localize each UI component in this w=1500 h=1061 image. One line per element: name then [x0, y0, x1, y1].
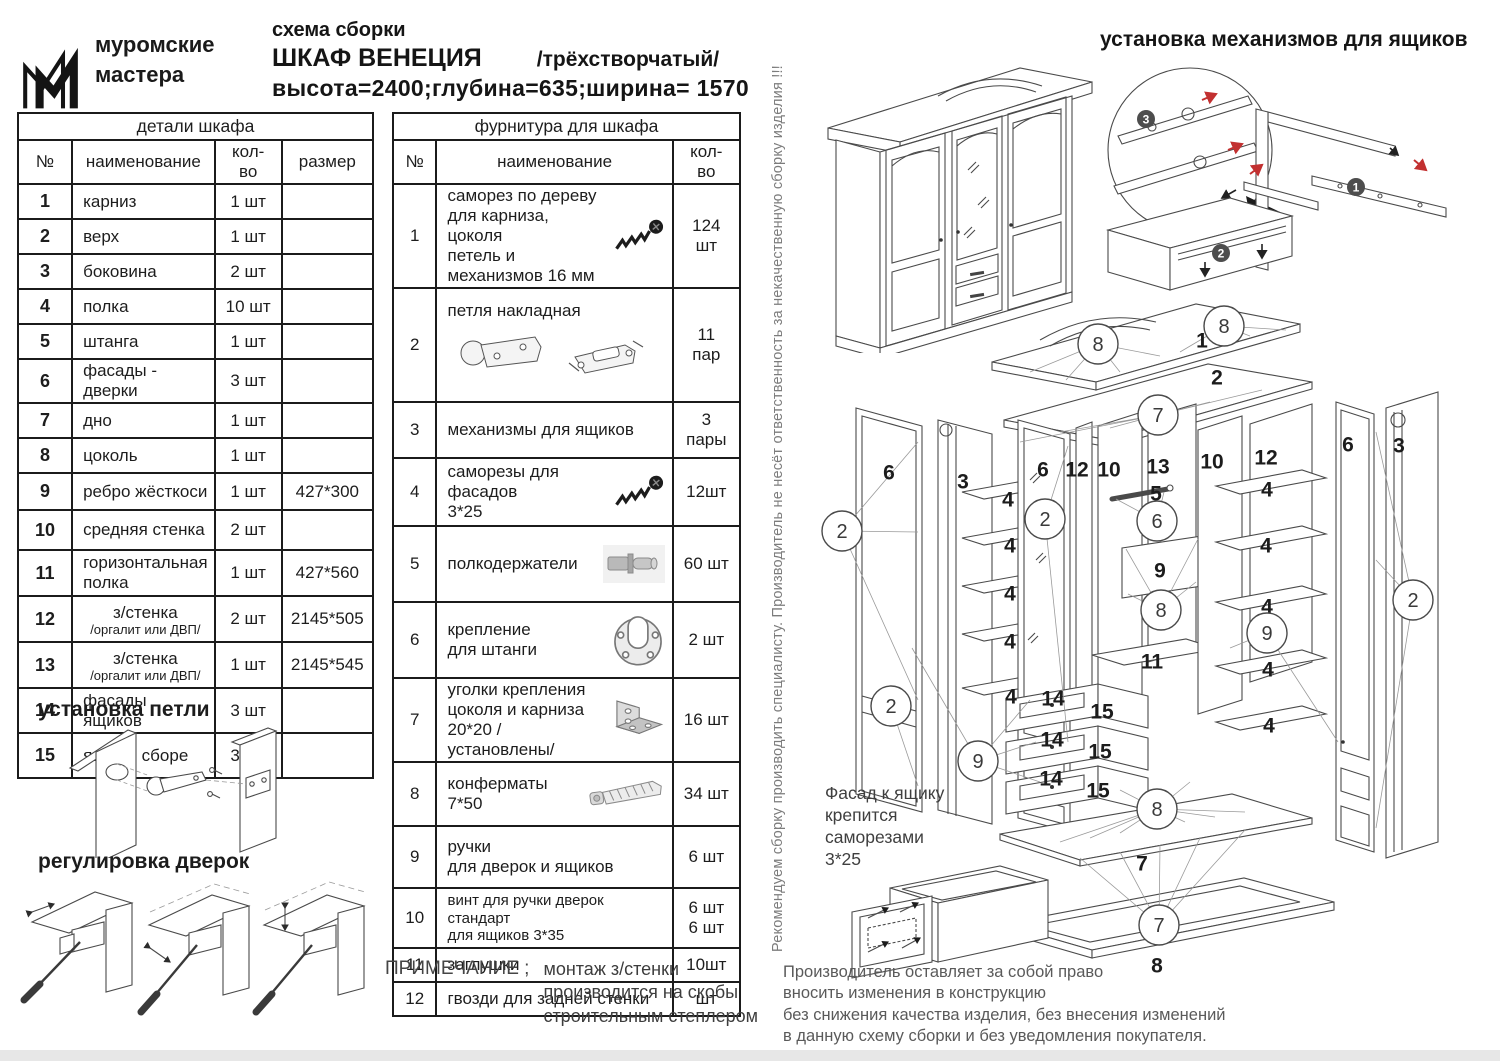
callout-number: 8 — [1155, 600, 1166, 622]
parts-table-row: 4 полка 10 шт — [18, 289, 373, 324]
shelf-pin-icon — [602, 544, 666, 584]
column-header: кол- во — [215, 140, 282, 184]
hardware-table: фурнитура для шкафа №наименованиекол- во… — [392, 112, 741, 1017]
part-name: з/стенка/оргалит или ДВП/ — [72, 642, 215, 688]
hardware-table-row: 3 механизмы для ящиков 3 пары — [393, 402, 740, 458]
door-adjust-scene-2 — [141, 884, 250, 1012]
part-label: 7 — [1136, 853, 1148, 876]
part-label: 4 — [1260, 535, 1272, 558]
part-label: 14 — [1041, 688, 1065, 711]
logo-monogram — [18, 40, 90, 112]
parts-table-wrap: детали шкафа №наименованиекол- воразмер … — [17, 112, 374, 779]
part-qty: 1 шт — [215, 403, 282, 438]
callout-number: 6 — [1151, 511, 1162, 533]
part-name: з/стенка/оргалит или ДВП/ — [72, 596, 215, 642]
part-label: 15 — [1090, 701, 1114, 724]
part-label: 10 — [1097, 459, 1120, 482]
door-adjust-scene-3 — [256, 882, 365, 1012]
hardware-table-row: 5 полкодержатели 60 шт — [393, 526, 740, 602]
part-size — [282, 289, 373, 324]
part-name: дно — [72, 403, 215, 438]
callout-number: 9 — [972, 751, 983, 773]
part-qty: 2 шт — [215, 596, 282, 642]
part-number: 4 — [18, 289, 72, 324]
part-label: 13 — [1146, 456, 1169, 479]
callout-number: 7 — [1153, 915, 1164, 937]
hardware-qty: 16 шт — [673, 678, 740, 762]
mech-rail — [1312, 148, 1446, 217]
part-qty: 2 шт — [215, 254, 282, 289]
scheme-title: ШКАФ ВЕНЕЦИЯ — [272, 43, 482, 74]
part-qty: 1 шт — [215, 219, 282, 254]
logo-line2: мастера — [95, 60, 215, 90]
hardware-table-title: фурнитура для шкафа — [393, 113, 740, 140]
hardware-table-row: 7 уголки крепления цоколя и карниза 20*2… — [393, 678, 740, 762]
manufacturer-note: Производитель оставляет за собой право в… — [783, 962, 1226, 1048]
scheme-dimensions: высота=2400;глубина=635;ширина= 1570 — [272, 74, 749, 103]
wood-screw-icon — [612, 213, 666, 259]
callout-number: 8 — [1151, 799, 1162, 821]
hardware-qty: 6 шт — [673, 826, 740, 888]
hardware-table-row: 10 винт для ручки дверок стандарт для ящ… — [393, 888, 740, 948]
part-qty: 1 шт — [215, 473, 282, 510]
hinge-install-left-panel — [70, 730, 150, 858]
hardware-number: 10 — [393, 888, 436, 948]
confirmat-icon — [588, 779, 666, 809]
hardware-name-cell: полкодержатели — [436, 526, 672, 602]
part-name: цоколь — [72, 438, 215, 473]
drawer-mech-title: установка механизмов для ящиков — [1100, 28, 1468, 52]
part-qty: 1 шт — [215, 438, 282, 473]
note-block: ПРИМЕЧАНИЕ ; монтаж з/стенки производитс… — [385, 958, 758, 1028]
hinge-icon — [457, 323, 657, 385]
hardware-name: крепление для штанги — [447, 620, 537, 660]
hardware-table-wrap: фурнитура для шкафа №наименованиекол- во… — [392, 112, 741, 1017]
hardware-qty: 2 шт — [673, 602, 740, 678]
wood-screw-icon — [612, 469, 666, 515]
hardware-name-cell: крепление для штанги — [436, 602, 672, 678]
column-header: наименование — [72, 140, 215, 184]
part-name: карниз — [72, 184, 215, 219]
parts-table-row: 3 боковина 2 шт — [18, 254, 373, 289]
right-door-part — [1336, 402, 1374, 852]
part-label: 3 — [957, 471, 969, 494]
hardware-name-cell: саморез по дереву для карниза, цоколя пе… — [436, 184, 672, 288]
parts-table-title: детали шкафа — [18, 113, 373, 140]
hardware-number: 2 — [393, 288, 436, 402]
parts-table-row: 13 з/стенка/оргалит или ДВП/ 1 шт 2145*5… — [18, 642, 373, 688]
hardware-name-cell: конферматы 7*50 — [436, 762, 672, 826]
part-number: 6 — [18, 359, 72, 403]
hardware-table-header: №наименованиекол- во — [393, 140, 740, 184]
part-size — [282, 359, 373, 403]
part-size — [282, 403, 373, 438]
title-block: схема сборки ШКАФ ВЕНЕЦИЯ /трёхстворчаты… — [272, 18, 749, 103]
part-label: 4 — [1004, 631, 1016, 654]
hardware-number: 6 — [393, 602, 436, 678]
part-number: 5 — [18, 324, 72, 359]
part-label: 15 — [1088, 741, 1112, 764]
part-name: полка — [72, 289, 215, 324]
hardware-table-row: 6 крепление для штанги 2 шт — [393, 602, 740, 678]
part-number: 11 — [18, 550, 72, 596]
part-label: 4 — [1004, 583, 1016, 606]
hardware-name: конферматы 7*50 — [447, 774, 547, 814]
part-number: 9 — [18, 473, 72, 510]
right-side-panel-part — [1386, 392, 1438, 858]
hardware-number: 1 — [393, 184, 436, 288]
note-text: монтаж з/стенки производится на скобы ст… — [543, 958, 758, 1028]
door-adjust-diagram — [20, 872, 370, 1050]
hardware-number: 5 — [393, 526, 436, 602]
parts-table-row: 1 карниз 1 шт — [18, 184, 373, 219]
hinge-arm — [147, 768, 222, 798]
part-label: 4 — [1261, 479, 1273, 502]
hardware-qty: 60 шт — [673, 526, 740, 602]
part-number: 2 — [18, 219, 72, 254]
hardware-name: полкодержатели — [447, 554, 577, 574]
parts-table-row: 11 горизонтальная полка 1 шт 427*560 — [18, 550, 373, 596]
callout-number: 2 — [836, 521, 847, 543]
part-label: 4 — [1263, 715, 1275, 738]
callout-number: 7 — [1152, 405, 1163, 427]
part-size: 2145*505 — [282, 596, 373, 642]
logo-line1: муромские — [95, 30, 215, 60]
logo-text: муромские мастера — [95, 30, 215, 89]
part-label: 6 — [1342, 434, 1354, 457]
hardware-name: саморезы для фасадов 3*25 — [447, 462, 607, 522]
hardware-number: 8 — [393, 762, 436, 826]
hardware-qty: 6 шт 6 шт — [673, 888, 740, 948]
hardware-name-cell: механизмы для ящиков — [436, 402, 672, 458]
corner-bracket-icon — [608, 697, 666, 743]
part-size — [282, 324, 373, 359]
part-number: 1 — [18, 184, 72, 219]
part-name: средняя стенка — [72, 510, 215, 550]
rod-bracket-icon — [610, 612, 666, 668]
part-label: 10 — [1200, 451, 1223, 474]
hardware-qty: 34 шт — [673, 762, 740, 826]
column-header: наименование — [436, 140, 672, 184]
part-size: 427*560 — [282, 550, 373, 596]
hardware-table-row: 9 ручки для дверок и ящиков 6 шт — [393, 826, 740, 888]
hardware-name-cell: ручки для дверок и ящиков — [436, 826, 672, 888]
hardware-name: уголки крепления цоколя и карниза 20*20 … — [447, 680, 603, 760]
hinge-install-right-panel — [206, 728, 276, 852]
assembly-scheme-page: муромские мастера схема сборки ШКАФ ВЕНЕ… — [0, 0, 1500, 1061]
parts-table: детали шкафа №наименованиекол- воразмер … — [17, 112, 374, 779]
part-size: 2145*545 — [282, 642, 373, 688]
hardware-number: 4 — [393, 458, 436, 526]
hardware-name: ручки для дверок и ящиков — [447, 837, 613, 877]
part-number: 3 — [18, 254, 72, 289]
hardware-name-cell: уголки крепления цоколя и карниза 20*20 … — [436, 678, 672, 762]
parts-table-row: 5 штанга 1 шт — [18, 324, 373, 359]
part-qty: 1 шт — [215, 550, 282, 596]
parts-table-row: 10 средняя стенка 2 шт — [18, 510, 373, 550]
hardware-name: винт для ручки дверок стандарт для ящико… — [447, 892, 665, 945]
part-qty: 10 шт — [215, 289, 282, 324]
parts-table-row: 9 ребро жёсткоси 1 шт 427*300 — [18, 473, 373, 510]
column-header: размер — [282, 140, 373, 184]
vertical-disclaimer: Рекомендуем сборку производить специалис… — [770, 57, 786, 952]
part-label: 11 — [1141, 651, 1164, 674]
hardware-name-cell: саморезы для фасадов 3*25 — [436, 458, 672, 526]
part-qty: 1 шт — [215, 324, 282, 359]
part-label: 4 — [1004, 535, 1016, 558]
part-label: 9 — [1154, 560, 1166, 583]
hardware-qty: 12шт — [673, 458, 740, 526]
step-badge-number: 2 — [1218, 247, 1225, 261]
part-size — [282, 219, 373, 254]
hinge-install-diagram — [20, 718, 370, 858]
part-number: 10 — [18, 510, 72, 550]
part-label: 4 — [1002, 489, 1014, 512]
part-label: 12 — [1065, 459, 1088, 482]
callout-number: 2 — [1039, 509, 1050, 531]
parts-table-row: 12 з/стенка/оргалит или ДВП/ 2 шт 2145*5… — [18, 596, 373, 642]
part-number: 8 — [18, 438, 72, 473]
hardware-qty: 124 шт — [673, 184, 740, 288]
part-label: 6 — [1037, 459, 1049, 482]
parts-table-row: 7 дно 1 шт — [18, 403, 373, 438]
hardware-name-cell: петля накладная — [436, 288, 672, 402]
column-header: № — [18, 140, 72, 184]
part-number: 12 — [18, 596, 72, 642]
column-header: № — [393, 140, 436, 184]
column-header: кол- во — [673, 140, 740, 184]
part-label: 2 — [1211, 367, 1223, 390]
drawer-mech-diagram: 312 — [1095, 50, 1495, 295]
part-size — [282, 438, 373, 473]
callout-number: 9 — [1261, 623, 1272, 645]
part-name: боковина — [72, 254, 215, 289]
part-label: 4 — [1262, 659, 1274, 682]
part-label: 6 — [883, 462, 895, 485]
part-label: 15 — [1086, 780, 1110, 803]
door-adjust-scene-1 — [24, 892, 132, 1000]
part-qty: 2 шт — [215, 510, 282, 550]
part-name: фасады - дверки — [72, 359, 215, 403]
hardware-name: петля накладная — [447, 301, 665, 321]
callout-number: 8 — [1092, 334, 1103, 356]
parts-table-row: 8 цоколь 1 шт — [18, 438, 373, 473]
hardware-name-cell: винт для ручки дверок стандарт для ящико… — [436, 888, 672, 948]
scheme-subtitle: схема сборки — [272, 18, 749, 43]
hardware-table-row: 2 петля накладная 11 пар — [393, 288, 740, 402]
part-number: 7 — [18, 403, 72, 438]
step-badge-number: 3 — [1143, 113, 1150, 127]
part-size — [282, 510, 373, 550]
callout-number: 2 — [885, 696, 896, 718]
page-bottom-strip — [0, 1050, 1500, 1061]
part-name: горизонтальная полка — [72, 550, 215, 596]
parts-table-row: 2 верх 1 шт — [18, 219, 373, 254]
hardware-qty: 3 пары — [673, 402, 740, 458]
callout-number: 2 — [1407, 590, 1418, 612]
part-label: 14 — [1040, 729, 1064, 752]
part-name: ребро жёсткоси — [72, 473, 215, 510]
hardware-table-row: 4 саморезы для фасадов 3*25 12шт — [393, 458, 740, 526]
hardware-name: саморез по дереву для карниза, цоколя пе… — [447, 186, 607, 286]
hardware-table-row: 1 саморез по дереву для карниза, цоколя … — [393, 184, 740, 288]
scheme-variant: /трёхстворчатый/ — [537, 47, 719, 73]
step-badge-number: 1 — [1353, 181, 1360, 195]
hardware-table-row: 8 конферматы 7*50 34 шт — [393, 762, 740, 826]
part-label: 4 — [1005, 686, 1017, 709]
parts-table-row: 6 фасады - дверки 3 шт — [18, 359, 373, 403]
part-qty: 1 шт — [215, 642, 282, 688]
part-label: 3 — [1393, 435, 1405, 458]
hardware-number: 9 — [393, 826, 436, 888]
part-name: штанга — [72, 324, 215, 359]
part-label: 12 — [1254, 447, 1277, 470]
hardware-qty: 11 пар — [673, 288, 740, 402]
door-adjust-title: регулировка дверок — [38, 850, 249, 874]
part-name: верх — [72, 219, 215, 254]
part-label: 14 — [1039, 768, 1063, 791]
part-size: 427*300 — [282, 473, 373, 510]
part-size — [282, 254, 373, 289]
part-number: 13 — [18, 642, 72, 688]
hardware-number: 3 — [393, 402, 436, 458]
parts-table-header: №наименованиекол- воразмер — [18, 140, 373, 184]
part-qty: 3 шт — [215, 359, 282, 403]
callout-number: 8 — [1218, 316, 1229, 338]
part-qty: 1 шт — [215, 184, 282, 219]
note-label: ПРИМЕЧАНИЕ ; — [385, 958, 529, 1028]
hardware-name: механизмы для ящиков — [447, 420, 633, 440]
part-size — [282, 184, 373, 219]
hardware-number: 7 — [393, 678, 436, 762]
